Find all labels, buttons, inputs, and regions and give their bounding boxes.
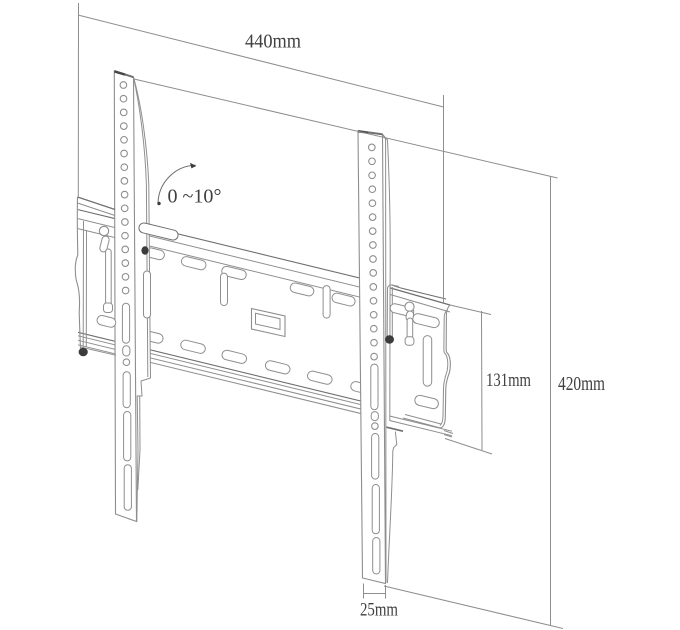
- svg-text:0 ~10°: 0 ~10°: [168, 186, 222, 208]
- svg-text:25mm: 25mm: [360, 600, 398, 621]
- svg-text:131mm: 131mm: [486, 370, 531, 391]
- svg-text:440mm: 440mm: [245, 31, 301, 53]
- svg-text:420mm: 420mm: [558, 373, 605, 395]
